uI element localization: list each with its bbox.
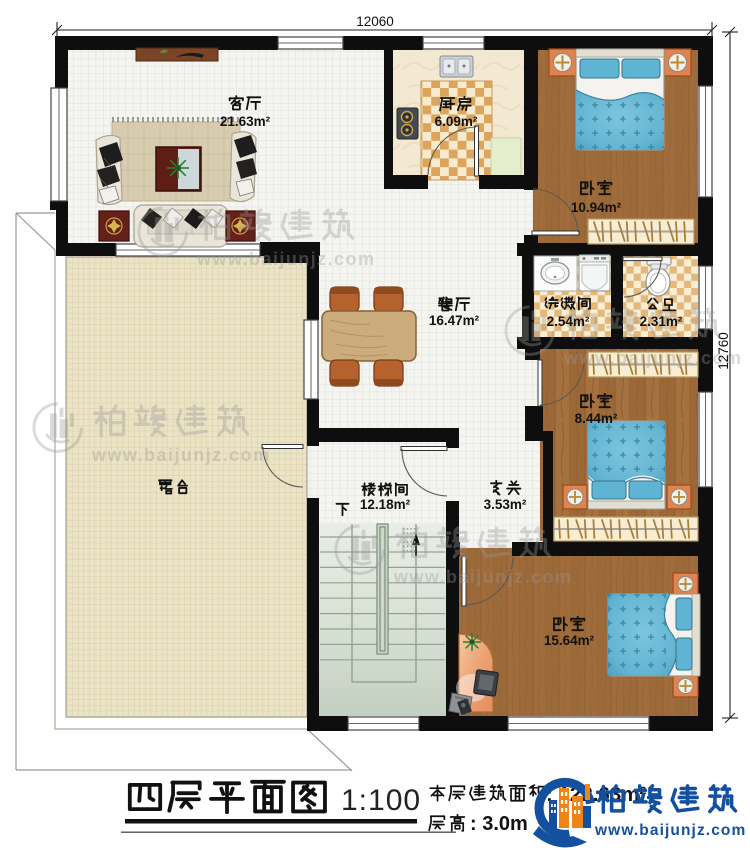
svg-text:12060: 12060 — [356, 14, 394, 29]
svg-text:www.baijunjz.com: www.baijunjz.com — [196, 249, 376, 269]
svg-text:12760: 12760 — [716, 332, 731, 370]
svg-text:: 3.0m: : 3.0m — [470, 813, 528, 835]
svg-text:3.53m²: 3.53m² — [484, 497, 527, 512]
svg-text:www.baijunjz.com: www.baijunjz.com — [594, 822, 746, 839]
svg-text:15.64m²: 15.64m² — [544, 633, 595, 648]
svg-text:www.baijunjz.com: www.baijunjz.com — [91, 445, 271, 465]
svg-text:16.47m²: 16.47m² — [429, 313, 480, 328]
svg-text:12.18m²: 12.18m² — [360, 497, 411, 512]
svg-text:www.baijunjz.com: www.baijunjz.com — [393, 567, 573, 587]
svg-text:2.54m²: 2.54m² — [547, 314, 590, 329]
svg-text:2.31m²: 2.31m² — [640, 314, 683, 329]
svg-text:10.94m²: 10.94m² — [571, 200, 622, 215]
svg-text:8.44m²: 8.44m² — [575, 411, 618, 426]
svg-text:21.63m²: 21.63m² — [220, 114, 271, 129]
svg-text:6.09m²: 6.09m² — [435, 114, 478, 129]
svg-text:1:100: 1:100 — [341, 784, 421, 817]
